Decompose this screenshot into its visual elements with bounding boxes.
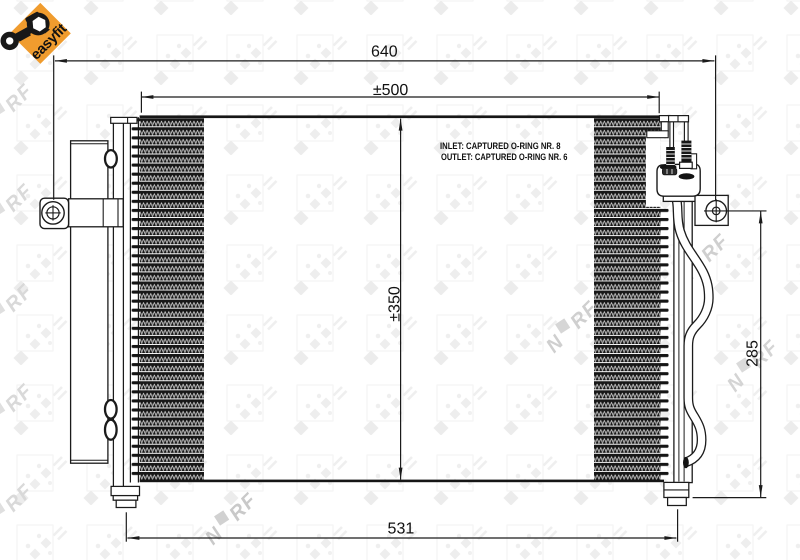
- svg-text:INLET: CAPTURED O-RING NR. 8: INLET: CAPTURED O-RING NR. 8: [440, 140, 561, 151]
- svg-text:531: 531: [388, 520, 415, 537]
- svg-text:640: 640: [371, 44, 398, 61]
- svg-text:OUTLET: CAPTURED O-RING NR. 6: OUTLET: CAPTURED O-RING NR. 6: [441, 151, 568, 162]
- svg-text:285: 285: [744, 340, 761, 367]
- svg-text:±500: ±500: [373, 82, 409, 99]
- svg-text:±350: ±350: [387, 286, 404, 322]
